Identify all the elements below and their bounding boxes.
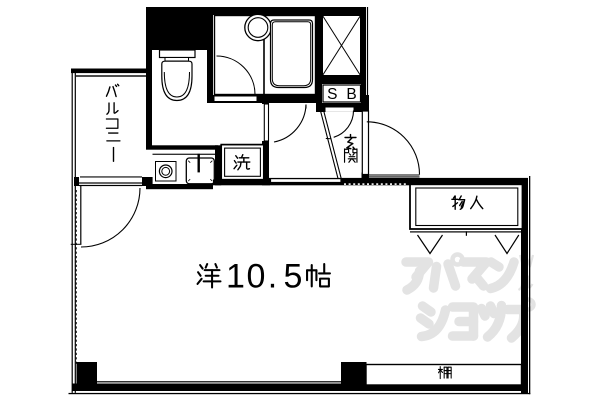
- svg-text:S: S: [327, 86, 337, 103]
- svg-text:5: 5: [284, 258, 303, 296]
- svg-text:.: .: [268, 258, 277, 296]
- svg-text:1: 1: [226, 258, 245, 296]
- svg-text:B: B: [346, 86, 356, 103]
- svg-text:0: 0: [247, 258, 266, 296]
